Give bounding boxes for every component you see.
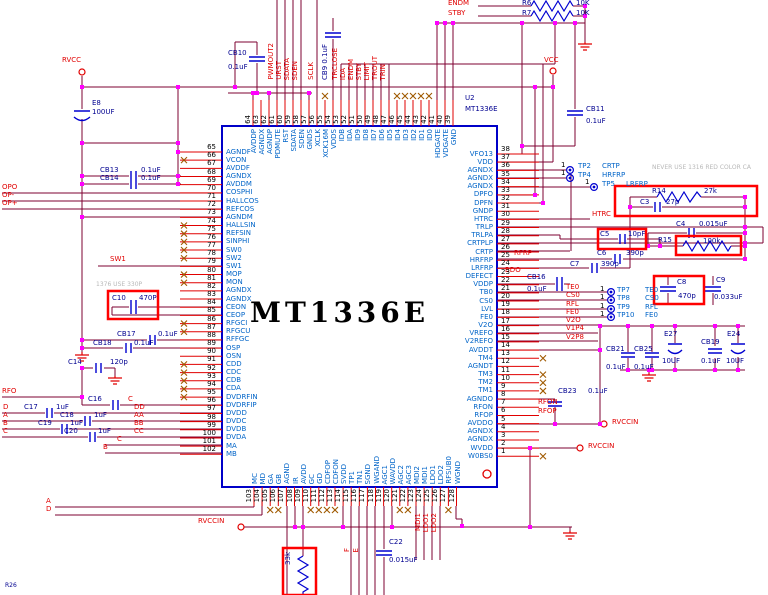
pin-name: ID5 [387, 129, 394, 141]
pin-number: 53 [333, 115, 340, 124]
tp-pin: 1 [585, 179, 589, 186]
net-label-c: C [128, 396, 133, 403]
net-label-cc: CC [134, 428, 144, 435]
erc-marker-circle [483, 470, 491, 478]
pin-number: 60 [277, 115, 284, 124]
pin-name: AGND [284, 463, 291, 484]
net-label-trout: TROUT [372, 56, 379, 80]
pin-name: VFO13 [418, 151, 493, 158]
pin-number: 9 [501, 383, 505, 390]
pin-name: DVDRFIP [226, 402, 257, 409]
pin-number: 11 [501, 367, 510, 374]
pin-number: 109 [295, 489, 302, 502]
net-label-htrc: HTRC [592, 211, 611, 218]
pin-name: ID7 [371, 129, 378, 141]
pin-number: 99 [186, 422, 216, 429]
testpoint-id: TP10 [617, 312, 634, 319]
pin-number: 17 [501, 318, 510, 325]
pin-name: AVDDT [418, 347, 493, 354]
r15-ref: R15 [658, 237, 672, 244]
pin-name: AGNDX [226, 296, 252, 303]
pin-name: XCLK [315, 129, 322, 147]
c18-ref: C18 [60, 412, 74, 419]
pin-name: SW1 [226, 263, 242, 270]
pin-number: 62 [261, 115, 268, 124]
pin-number: 21 [501, 285, 510, 292]
cb19-value: 0.1uF [701, 358, 721, 365]
pin-name: MB [226, 451, 237, 458]
pin-number: 12 [501, 358, 510, 365]
pin-name: AGNDX [226, 173, 252, 180]
net-label-b: B [103, 444, 108, 451]
pin-number: 108 [287, 489, 294, 502]
testpoint-net: RFL [645, 304, 658, 311]
c14-ref: C14 [68, 359, 82, 366]
pin-number: 1 [501, 448, 505, 455]
c6-value: 390p [626, 250, 644, 257]
pin-number: 16 [501, 326, 510, 333]
c10-value: 470P [139, 295, 157, 302]
pin-number: 52 [341, 115, 348, 124]
pin-name: MDI2 [414, 466, 421, 484]
pin-name: CDFON [333, 459, 340, 484]
net-label-limit: LIMIT [364, 62, 371, 80]
pin-name: PDMUTE [275, 129, 282, 158]
pin-name: DVDRFIN [226, 394, 258, 401]
pin-name: DPFO [418, 191, 493, 198]
pin-name: VDDS [331, 129, 338, 149]
pin-number: 23 [501, 269, 510, 276]
net-label-fe0: FE0 [566, 309, 579, 316]
pin-name: HRFRP [418, 257, 493, 264]
pin-number: 26 [501, 244, 510, 251]
pin-name: LVL [418, 306, 493, 313]
net-label-v2p8: V2P8 [566, 334, 584, 341]
pin-number: 103 [246, 489, 253, 502]
pin-name: WGND [455, 461, 462, 484]
pin-number: 92 [186, 365, 216, 372]
pin-name: DVDC [226, 418, 246, 425]
r14-value: 27k [704, 188, 717, 195]
pin-number: 61 [269, 115, 276, 124]
pin-name: TM4 [418, 355, 493, 362]
pin-number: 97 [186, 405, 216, 412]
pin-name: ID0 [427, 129, 434, 141]
c20-value: 1uF [98, 428, 111, 435]
pin-number: 39 [445, 115, 452, 124]
net-label-d: D [3, 404, 8, 411]
net-label-aa: AA [134, 412, 144, 419]
cb25-ref: CB25 [634, 346, 653, 353]
pin-number: 78 [186, 250, 216, 257]
pin-name: AGNDT [418, 363, 493, 370]
r15-value: 100k [703, 238, 720, 245]
pin-number: 113 [327, 489, 334, 502]
net-label-mdi1: MDI1 [415, 513, 422, 531]
r14-ref: R14 [652, 188, 666, 195]
pin-name: VREFO [418, 330, 493, 337]
c22-ref: C22 [389, 539, 403, 546]
pin-number: 76 [186, 234, 216, 241]
c9-ref: C9 [716, 277, 725, 284]
pin-number: 33 [501, 187, 510, 194]
pin-number: 13 [501, 350, 510, 357]
net-label-endm: ENDM [348, 59, 355, 80]
pin-number: 69 [186, 177, 216, 184]
pin-name: AGNDP [267, 129, 274, 154]
net-label-v1p4: V1P4 [566, 325, 584, 332]
net-label-f: F [344, 548, 351, 552]
pin-name: AGNDF [226, 149, 251, 156]
pin-number: 29 [501, 220, 510, 227]
pin-number: 56 [309, 115, 316, 124]
c7-value: 390p [601, 261, 619, 268]
pin-name: SW0 [226, 247, 242, 254]
pin-number: 102 [186, 446, 216, 453]
net-label-sden: SDEN [292, 61, 299, 81]
pin-number: 3 [501, 432, 505, 439]
c5-ref: C5 [600, 231, 609, 238]
net-label-bb: BB [134, 420, 144, 427]
pin-number: 101 [186, 438, 216, 445]
testpoint-id: TP8 [617, 295, 630, 302]
pin-name: AGC1 [382, 465, 389, 484]
pin-number: 30 [501, 211, 510, 218]
pin-name: WAVDD [390, 458, 397, 484]
net-label-op-plus: OP+ [2, 200, 18, 207]
pin-name: W0BS0 [418, 453, 493, 460]
pin-number: 90 [186, 348, 216, 355]
pin-number: 35 [501, 171, 510, 178]
pin-name: AGNDX [418, 436, 493, 443]
pin-number: 89 [186, 340, 216, 347]
c17-value: 1uF [56, 404, 69, 411]
net-label-sdata: SDATA [284, 58, 291, 80]
pin-number: 37 [501, 154, 510, 161]
pin-name: GNDS [307, 129, 314, 150]
net-label-ldo2: LDO2 [431, 513, 438, 532]
pin-number: 14 [501, 342, 510, 349]
pin-name: SGND [365, 464, 372, 485]
schematic-page: MT1336E U2 MT1336E RVCC VCC RVCCIN RVCCI… [0, 0, 768, 595]
tp-pin: 1 [561, 170, 565, 177]
cb11-value: 0.1uF [586, 118, 606, 125]
pin-number: 85 [186, 307, 216, 314]
pin-name: CDB [226, 377, 241, 384]
net-label-a: A [46, 498, 51, 505]
net-label-rfo: RFO [2, 388, 16, 395]
pin-name: REFSIN [226, 230, 251, 237]
c3-ref: C3 [640, 199, 649, 206]
pin-name: VDD [418, 159, 493, 166]
cb17-ref: CB17 [117, 331, 136, 338]
pin-name: AVDDP [251, 129, 258, 153]
cb18-value: 0.1uF [134, 340, 154, 347]
pin-number: 107 [278, 489, 285, 502]
tp-pin: 1 [600, 303, 604, 310]
pin-number: 48 [373, 115, 380, 124]
pin-name: V2REFO [418, 338, 493, 345]
pin-number: 100 [186, 430, 216, 437]
cb23-ref: CB23 [558, 388, 577, 395]
pin-number: 38 [501, 146, 510, 153]
pin-number: 18 [501, 309, 510, 316]
tp-pin: 1 [600, 286, 604, 293]
pin-name: AGNDX [418, 175, 493, 182]
pin-number: 94 [186, 381, 216, 388]
cb25-value: 0.1uF [634, 364, 654, 371]
pin-name: CEOP [226, 312, 245, 319]
r7-value: 10K [576, 10, 590, 17]
pin-name: RFGCU [226, 328, 250, 335]
pin-number: 111 [311, 489, 318, 502]
pin-name: HALLCOS [226, 198, 259, 205]
net-label-te0: TE0 [566, 284, 579, 291]
pin-number: 57 [301, 115, 308, 124]
cb21-ref: CB21 [606, 346, 625, 353]
pin-name: VCON [226, 157, 246, 164]
pin-number: 88 [186, 332, 216, 339]
pin-name: GNDP [418, 208, 493, 215]
r6-value: 10K [576, 0, 590, 7]
pin-number: 65 [186, 144, 216, 151]
pin-number: 110 [303, 489, 310, 502]
pin-number: 54 [325, 115, 332, 124]
pin-number: 22 [501, 277, 510, 284]
pin-name: IDA [347, 129, 354, 141]
pin-number: 70 [186, 185, 216, 192]
pin-number: 50 [357, 115, 364, 124]
net-label-e: E [353, 548, 360, 552]
pin-number: 20 [501, 293, 510, 300]
pin-name: FE0 [418, 314, 493, 321]
pin-number: 118 [368, 489, 375, 502]
pin-name: DVDD [226, 410, 247, 417]
cb19-ref: CB19 [701, 339, 720, 346]
pin-name: HDGATE [435, 129, 442, 158]
pin-number: 121 [392, 489, 399, 502]
pin-name: MA [226, 443, 237, 450]
pin-name: CRTPLP [418, 240, 493, 247]
pin-number: 5 [501, 416, 505, 423]
net-label-ida: IDA [340, 68, 347, 80]
pin-number: 80 [186, 267, 216, 274]
net-label-a: A [3, 412, 8, 419]
pin-number: 24 [501, 260, 510, 267]
pin-number: 91 [186, 356, 216, 363]
pin-name: ID3 [403, 129, 410, 141]
pin-name: DPFN [418, 200, 493, 207]
net-label-opo: OPO [2, 184, 17, 191]
pin-number: 95 [186, 389, 216, 396]
pin-number: 74 [186, 218, 216, 225]
pin-name: ID1 [419, 129, 426, 141]
pin-name: MON [226, 279, 243, 286]
net-label-ldo1: LDO1 [423, 513, 430, 532]
tp-pin: 1 [561, 162, 565, 169]
pin-name: CDC [226, 369, 241, 376]
pin-number: 4 [501, 424, 505, 431]
cb13-ref: CB13 [100, 167, 119, 174]
pin-name: COSPHI [226, 189, 252, 196]
pin-name: AGC3 [406, 465, 413, 484]
pin-number: 59 [285, 115, 292, 124]
chip-designator: U2 [465, 95, 475, 102]
pin-name: MOP [226, 271, 242, 278]
pin-name: RFSUB0 [446, 456, 453, 484]
c4-ref: C4 [676, 221, 685, 228]
net-label-op-minus: OP- [2, 192, 14, 199]
c7-ref: C7 [570, 261, 579, 268]
pin-name: ID4 [395, 129, 402, 141]
pin-name: SINPHI [226, 238, 249, 245]
pin-name: AGNDX [259, 129, 266, 155]
pin-number: 36 [501, 162, 510, 169]
testpoint-id: TP5 [602, 181, 615, 188]
pin-number: 25 [501, 252, 510, 259]
net-label-rfrp: RFRP [514, 250, 532, 257]
pin-number: 10 [501, 375, 510, 382]
testpoint-id: TP4 [578, 172, 591, 179]
net-label-rvccin: RVCCIN [198, 518, 224, 525]
pin-name: ID2 [411, 129, 418, 141]
pin-number: 68 [186, 169, 216, 176]
pin-name: XCK16M [323, 129, 330, 158]
pin-name: LRFRP [418, 265, 493, 272]
pin-number: 2 [501, 440, 505, 447]
pin-number: 81 [186, 275, 216, 282]
pin-name: TRLPA [418, 232, 493, 239]
pin-name: CEON [226, 304, 246, 311]
net-label-rvcc: RVCC [62, 57, 81, 64]
pin-number: 98 [186, 414, 216, 421]
net-label-b: B [3, 420, 8, 427]
pin-number: 83 [186, 291, 216, 298]
pin-name: ID8 [363, 129, 370, 141]
pin-number: 96 [186, 397, 216, 404]
pin-name: AVDDF [226, 165, 250, 172]
pin-name: DEFECT [418, 273, 493, 280]
pin-number: 66 [186, 152, 216, 159]
net-label-pwmout2: PWMOUT2 [268, 43, 275, 80]
chip-center-label: MT1336E [250, 296, 429, 329]
pin-name: WGAND [374, 456, 381, 484]
pin-number: 84 [186, 299, 216, 306]
pin-number: 86 [186, 316, 216, 323]
pin-number: 15 [501, 334, 510, 341]
pin-number: 55 [317, 115, 324, 124]
cb13-value: 0.1uF [141, 167, 161, 174]
cb18-ref: CB18 [93, 340, 112, 347]
net-label-vcc: VCC [544, 57, 559, 64]
pin-number: 6 [501, 407, 505, 414]
pin-number: 47 [381, 115, 388, 124]
testpoint-net: CS0 [645, 295, 659, 302]
pin-name: AGC2 [398, 465, 405, 484]
pin-number: 119 [376, 489, 383, 502]
pin-name: CS0 [418, 298, 493, 305]
c18-value: 1uF [94, 412, 107, 419]
testpoint-id: TP7 [617, 287, 630, 294]
net-label-rfl: RFL [566, 301, 579, 308]
pin-name: AGNDO [418, 396, 493, 403]
c19-ref: C19 [38, 420, 52, 427]
pin-number: 79 [186, 258, 216, 265]
cb23-value: 0.1uF [588, 388, 608, 395]
pin-name: ID6 [379, 129, 386, 141]
pin-name: MC [252, 473, 259, 484]
e24-value: 10UF [726, 358, 744, 365]
cb14-ref: CB14 [100, 175, 119, 182]
pin-name: RFGCI [226, 320, 247, 327]
tp-pin: 1 [600, 294, 604, 301]
testpoint-net: FE0 [645, 312, 658, 319]
note-left: 1376 USE 330P [96, 282, 142, 288]
pin-number: 27 [501, 236, 510, 243]
pin-name: GC [309, 474, 316, 484]
net-label-rfon: RFON [538, 399, 558, 406]
c22-value: 0.015uF [389, 557, 418, 564]
pin-number: 63 [253, 115, 260, 124]
pin-number: 58 [293, 115, 300, 124]
pin-number: 46 [389, 115, 396, 124]
pin-number: 31 [501, 203, 510, 210]
pin-number: 28 [501, 228, 510, 235]
pin-number: 120 [384, 489, 391, 502]
note-right: NEVER USE 1316 RED COLOR CA [652, 165, 751, 171]
net-label-endm: ENDM [448, 0, 469, 7]
testpoint-net: HRFRP [602, 172, 625, 179]
cb16-ref: CB16 [527, 274, 546, 281]
e24-ref: E24 [727, 331, 740, 338]
pin-number: 82 [186, 283, 216, 290]
pin-name: TB0 [418, 289, 493, 296]
e8-ref: E8 [92, 100, 101, 107]
c16-ref: C16 [88, 396, 102, 403]
pin-number: 64 [245, 115, 252, 124]
c4-value: 0.015uF [699, 221, 728, 228]
note-corner: R26 [5, 583, 17, 589]
pin-number: 42 [421, 115, 428, 124]
pin-number: 51 [349, 115, 356, 124]
pin-name: DVDB [226, 426, 246, 433]
pin-name: SDEN [299, 129, 306, 149]
pin-name: CDD [226, 361, 242, 368]
pin-name: AVDDO [418, 420, 493, 427]
pin-number: 44 [405, 115, 412, 124]
pin-number: 40 [437, 115, 444, 124]
net-label-c: C [3, 428, 8, 435]
testpoint-net: TE0 [645, 287, 658, 294]
net-label-cs0: CS0 [566, 292, 580, 299]
pin-number: 71 [186, 193, 216, 200]
pin-name: DVDA [226, 434, 246, 441]
c9-value: 0.033uF [714, 294, 743, 301]
pin-number: 72 [186, 201, 216, 208]
pin-number: 117 [359, 489, 366, 502]
testpoint-net: LRFRP [626, 181, 648, 188]
c17-ref: C17 [24, 404, 38, 411]
net-label-rfop: RFOP [538, 408, 557, 415]
cb9-label: CB9 0.1uF [322, 44, 329, 80]
net-label-sw1: SW1 [110, 256, 126, 263]
pin-name: CDFOP [325, 460, 332, 484]
e27-value: 10UF [662, 358, 680, 365]
chip-part-number: MT1336E [465, 106, 498, 113]
cb11-ref: CB11 [586, 106, 605, 113]
pin-name: TRLP [418, 224, 493, 231]
pin-name: TM3 [418, 371, 493, 378]
